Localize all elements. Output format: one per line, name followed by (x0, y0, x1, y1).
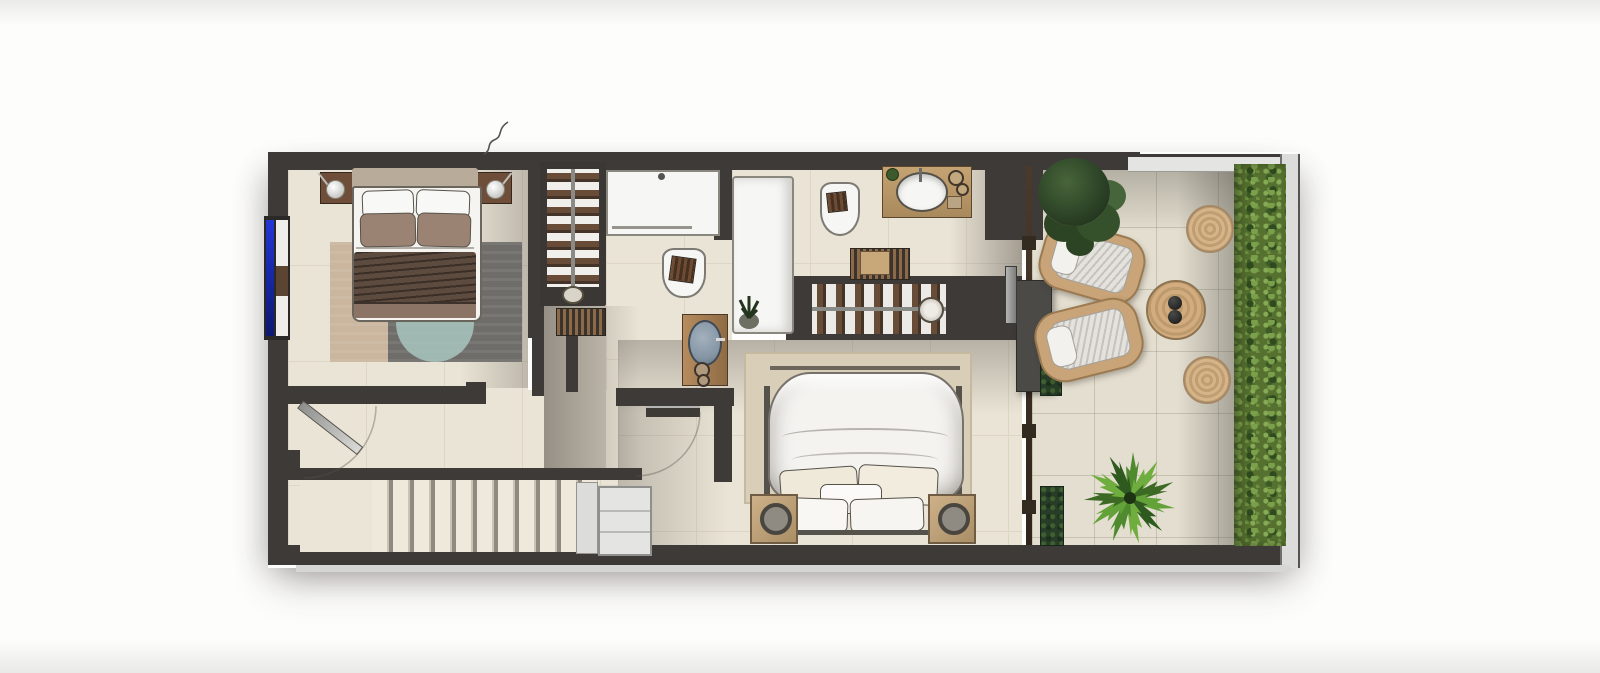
mullion-node-3 (1022, 424, 1036, 438)
wall-tv-panel (1005, 266, 1017, 324)
stair-landing (300, 480, 374, 552)
vanity2-soap-icon (947, 196, 962, 209)
mullion-node-4 (1022, 500, 1036, 514)
wall-bedroom1-stub (466, 382, 486, 404)
masterbed-foot-rail (770, 366, 960, 370)
wall-master-entry-v (714, 402, 732, 482)
window-sill-divider (276, 266, 288, 296)
shower1-head-icon (658, 173, 665, 180)
wardrobe2-basket-icon (918, 297, 944, 323)
toilet2-towel (826, 191, 848, 213)
entry-door-swing-arc (300, 402, 380, 482)
master-pillow-5 (849, 497, 924, 534)
masterbed-crease1 (782, 428, 948, 446)
storage-cabinet (598, 486, 652, 556)
vanity1-faucet-icon (716, 338, 725, 341)
toilet1-towel (668, 255, 696, 283)
corner-plant-icon (730, 288, 768, 330)
rattan-coffee-table (1146, 280, 1206, 340)
decor-ball-2-icon (1168, 310, 1182, 324)
terrace-rail-bottom (296, 565, 1290, 572)
ball-lamp-left-icon (326, 180, 345, 199)
wardrobe1-basket-icon (562, 286, 584, 304)
floor-plan-canvas (0, 0, 1600, 673)
planter-box-2 (1040, 486, 1064, 546)
decor-ball-1-icon (1168, 296, 1182, 310)
vanity2-plant-icon (886, 168, 899, 181)
vanity1-basin (688, 320, 722, 366)
bed1-pillow-brown-left (360, 213, 417, 248)
bed1-blanket (354, 252, 476, 304)
wardrobe1-clothes (547, 169, 599, 287)
bench-basket-icon (860, 251, 890, 275)
master-speaker-right-icon (938, 503, 970, 535)
vanity1-jar2-icon (697, 374, 710, 387)
cable-squiggle-icon (478, 120, 512, 156)
staircase (372, 480, 598, 552)
wall-left (268, 152, 288, 563)
door-post-2 (566, 336, 578, 392)
mullion-node-1 (1022, 236, 1036, 250)
wall-stairs-stub (284, 450, 300, 472)
privacy-hedge (1234, 164, 1286, 546)
window-glass-blue (266, 220, 274, 336)
rattan-pouf-2 (1183, 356, 1231, 404)
wall-terrace-corner (985, 152, 1043, 240)
ball-lamp-right-icon (486, 180, 505, 199)
stair-side-panel (576, 482, 598, 554)
wood-mat (556, 308, 606, 336)
master-speaker-left-icon (760, 503, 792, 535)
bed1-blanket-edge (354, 302, 476, 318)
fan-palm-plant (1078, 446, 1182, 550)
vanity2-basin (896, 172, 948, 212)
vanity2-jar2-icon (956, 183, 969, 196)
bed1-pillow-brown-right (417, 212, 472, 247)
vanity2-faucet-icon (919, 168, 922, 182)
door-post-1 (532, 336, 544, 396)
shower1-glass (612, 226, 692, 229)
master-door-swing-arc (634, 410, 704, 480)
rattan-pouf-1 (1186, 205, 1234, 253)
bed1-sheet-fold (356, 247, 474, 249)
terrace-tree (1038, 158, 1110, 226)
